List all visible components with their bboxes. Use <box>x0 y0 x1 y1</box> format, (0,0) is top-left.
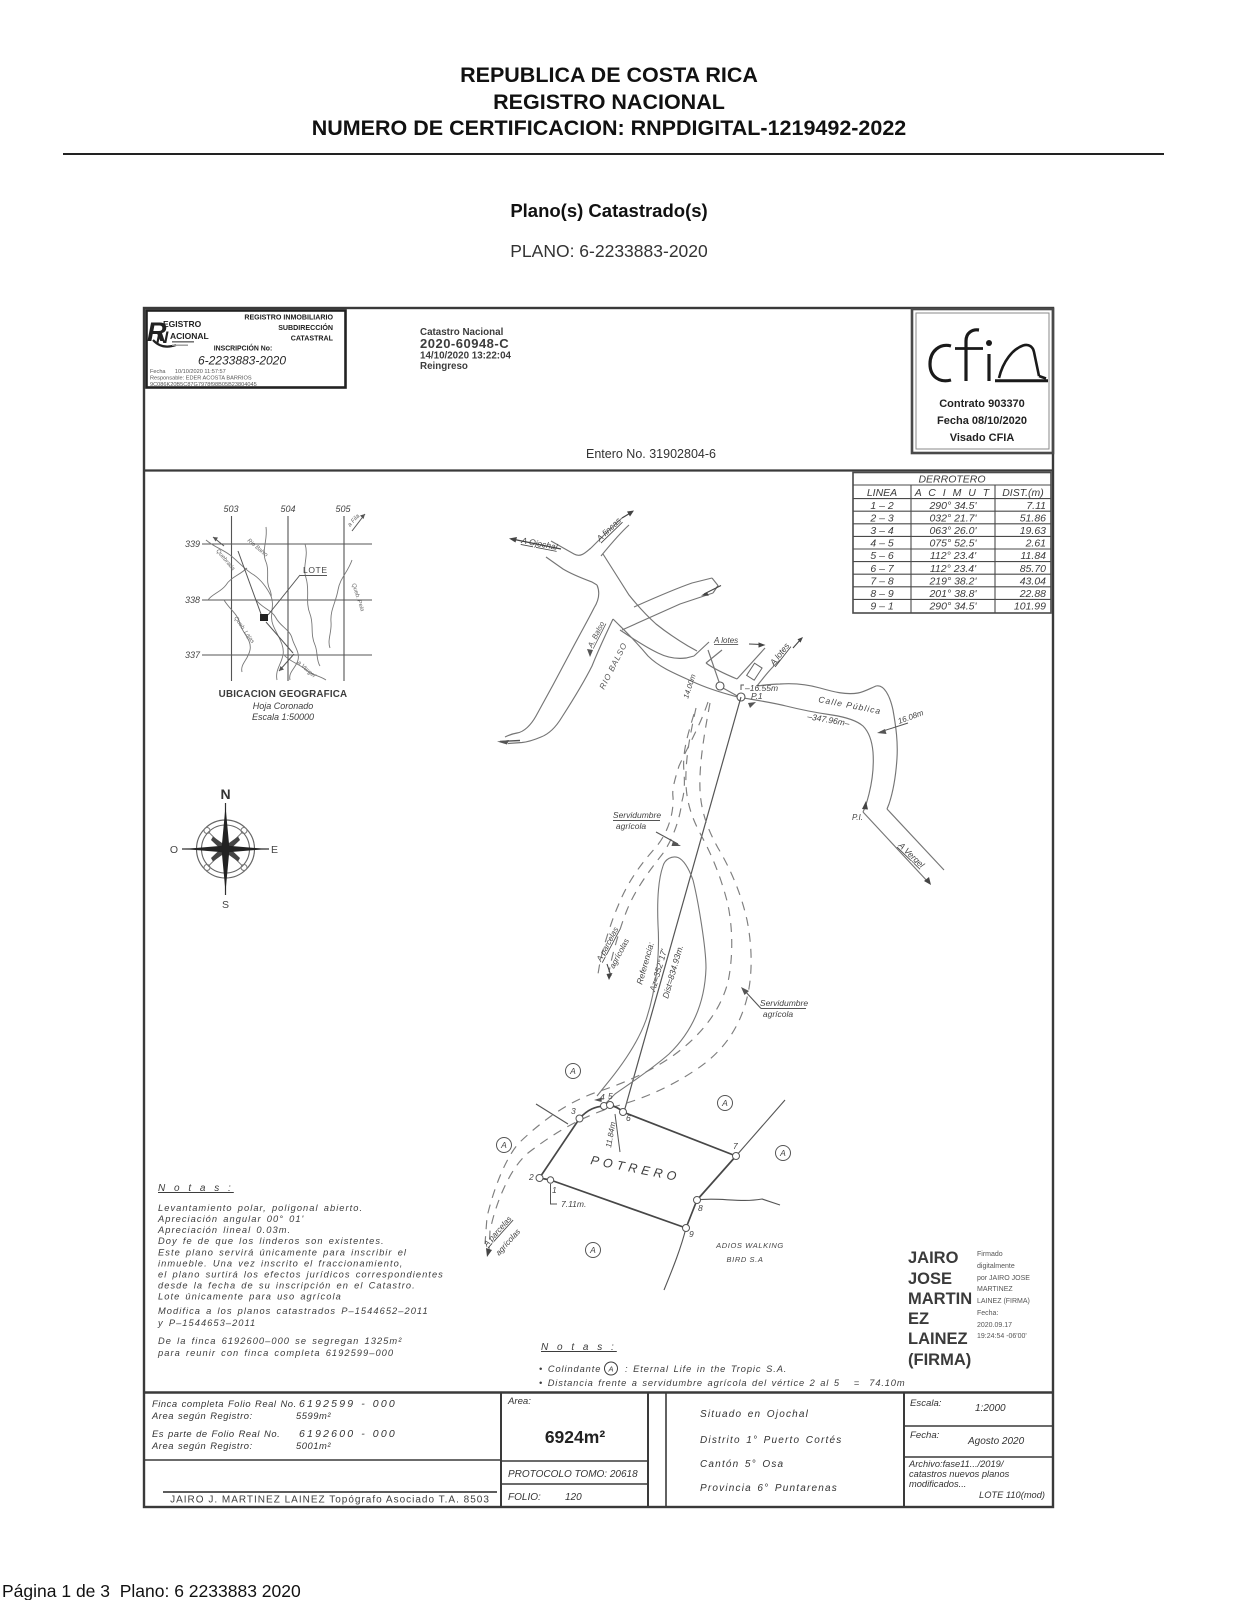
svg-text:4 – 5: 4 – 5 <box>870 538 894 550</box>
svg-text:19.63: 19.63 <box>1020 525 1046 537</box>
svg-text:112° 23.4': 112° 23.4' <box>930 563 977 575</box>
svg-text:5001m²: 5001m² <box>296 1440 331 1451</box>
svg-text:• Colindante: • Colindante <box>539 1364 601 1374</box>
svg-text:UBICACION GEOGRAFICA: UBICACION GEOGRAFICA <box>219 689 348 700</box>
svg-text:7.11m.: 7.11m. <box>561 1199 586 1209</box>
svg-text:P.1: P.1 <box>751 691 763 701</box>
svg-text:JAIRO: JAIRO <box>908 1249 959 1267</box>
svg-text:para reunir con finca completa: para reunir con finca completa 6192599–0… <box>157 1348 394 1358</box>
svg-text:A: A <box>721 1098 728 1108</box>
svg-text:y P–1544653–2011: y P–1544653–2011 <box>157 1318 256 1328</box>
svg-text:3 – 4: 3 – 4 <box>870 525 894 537</box>
svg-text:290° 34.5': 290° 34.5' <box>928 601 977 613</box>
svg-text:Visado CFIA: Visado CFIA <box>950 432 1015 444</box>
svg-text:6192599 - 000: 6192599 - 000 <box>299 1398 397 1410</box>
svg-text:9 – 1: 9 – 1 <box>870 601 893 613</box>
svg-text:REGISTRO INMOBILIARIO: REGISTRO INMOBILIARIO <box>244 314 333 322</box>
svg-text:CATASTRAL: CATASTRAL <box>291 335 334 343</box>
svg-text:A: A <box>500 1140 507 1150</box>
svg-text:1:2000: 1:2000 <box>975 1403 1006 1414</box>
svg-text:LAINEZ: LAINEZ <box>908 1330 968 1348</box>
svg-text:3: 3 <box>571 1106 576 1116</box>
svg-text:Agosto 2020: Agosto 2020 <box>967 1436 1025 1447</box>
svg-text:S: S <box>222 899 229 911</box>
svg-text:EGISTRO: EGISTRO <box>163 319 202 329</box>
svg-text:LOTE: LOTE <box>303 565 328 575</box>
svg-text:De la finca 6192600–000 se seg: De la finca 6192600–000 se segregan 1325… <box>158 1336 402 1346</box>
svg-text:7.11: 7.11 <box>1026 500 1046 512</box>
svg-text:51.86: 51.86 <box>1020 512 1046 524</box>
svg-text:N: N <box>220 786 230 802</box>
svg-text:Archivo:fase11.../2019/: Archivo:fase11.../2019/ <box>908 1459 1005 1469</box>
svg-text:A: A <box>569 1066 576 1076</box>
svg-text:ACIONAL: ACIONAL <box>170 331 209 341</box>
svg-text:N o t a s :: N o t a s : <box>541 1342 617 1353</box>
svg-text:6924m²: 6924m² <box>545 1427 605 1447</box>
svg-text:290° 34.5': 290° 34.5' <box>928 500 977 512</box>
svg-text:A lotes: A lotes <box>713 636 738 645</box>
svg-text:agrícola: agrícola <box>763 1009 794 1019</box>
svg-text:2020.09.17: 2020.09.17 <box>977 1322 1012 1329</box>
svg-text:7 – 8: 7 – 8 <box>870 575 894 587</box>
svg-text:Provincia 6° Puntarenas: Provincia 6° Puntarenas <box>700 1483 838 1494</box>
svg-text:Calle Pública: Calle Pública <box>818 694 883 716</box>
svg-text:219° 38.2': 219° 38.2' <box>928 575 977 587</box>
svg-text:Levantamiento polar, poligonal: Levantamiento polar, poligonal abierto. <box>158 1203 363 1213</box>
svg-text:Hoja Coronado: Hoja Coronado <box>253 701 314 711</box>
svg-text:Este plano servirá únicamente: Este plano servirá únicamente para inscr… <box>158 1248 407 1258</box>
svg-text:A. Balso: A. Balso <box>585 620 606 650</box>
svg-text:Reingreso: Reingreso <box>420 361 468 372</box>
svg-text:LINEA: LINEA <box>867 487 897 499</box>
svg-text:PROTOCOLO TOMO: 20618: PROTOCOLO TOMO: 20618 <box>508 1469 638 1480</box>
svg-text:11.84m: 11.84m <box>604 1121 617 1149</box>
svg-text:Situado en Ojochal: Situado en Ojochal <box>700 1409 809 1420</box>
svg-text:063° 26.0': 063° 26.0' <box>929 525 977 537</box>
svg-text:6 – 7: 6 – 7 <box>870 563 895 575</box>
svg-text:: Eternal Life in the Tropic: : Eternal Life in the Tropic S.A. <box>625 1364 787 1374</box>
svg-text:A Vergel: A Vergel <box>896 840 927 871</box>
svg-text:075° 52.5': 075° 52.5' <box>929 538 977 550</box>
svg-text:Doy fe de que los linderos son: Doy fe de que los linderos son existente… <box>158 1236 385 1246</box>
svg-text:E: E <box>271 844 278 856</box>
svg-text:503: 503 <box>223 504 238 514</box>
svg-text:agrícola: agrícola <box>616 821 647 831</box>
svg-text:85.70: 85.70 <box>1020 563 1046 575</box>
svg-text:INSCRIPCIÓN No:: INSCRIPCIÓN No: <box>214 344 273 353</box>
svg-text:FOLIO:: FOLIO: <box>508 1492 541 1503</box>
svg-text:120: 120 <box>565 1492 582 1503</box>
svg-text:SUBDIRECCIÓN: SUBDIRECCIÓN <box>278 323 333 332</box>
svg-text:A fincas: A fincas <box>594 515 624 544</box>
svg-text:338: 338 <box>185 595 200 605</box>
svg-text:DERROTERO: DERROTERO <box>918 474 985 486</box>
svg-text:Escala:: Escala: <box>910 1398 942 1409</box>
svg-text:BIRD S.A: BIRD S.A <box>727 1255 764 1264</box>
svg-text:5599m²: 5599m² <box>296 1410 331 1421</box>
svg-text:LOTE 110(mod): LOTE 110(mod) <box>979 1490 1045 1500</box>
svg-text:JOSE: JOSE <box>908 1270 952 1288</box>
svg-text:Apreciación angular 00° 01': Apreciación angular 00° 01' <box>157 1214 305 1224</box>
svg-text:112° 23.4': 112° 23.4' <box>930 550 977 562</box>
svg-text:• Distancia frente a servidumb: • Distancia frente a servidumbre agrícol… <box>539 1378 905 1388</box>
svg-text:EZ: EZ <box>908 1310 929 1328</box>
svg-text:por JAIRO JOSE: por JAIRO JOSE <box>977 1275 1030 1282</box>
svg-text:Apreciación lineal 0.03m.: Apreciación lineal 0.03m. <box>157 1225 291 1235</box>
svg-text:9C086K20B5C87G7978f98B05B23804: 9C086K20B5C87G7978f98B05B23804045 <box>150 382 257 388</box>
svg-text:ADIOS WALKING: ADIOS WALKING <box>715 1241 784 1250</box>
svg-text:2 – 3: 2 – 3 <box>869 512 894 524</box>
svg-text:6192600 - 000: 6192600 - 000 <box>299 1428 397 1440</box>
svg-text:A: A <box>779 1148 786 1158</box>
svg-text:6: 6 <box>626 1113 631 1123</box>
svg-text:16.08m: 16.08m <box>897 708 925 726</box>
svg-text:el plano surtirá los efectos j: el plano surtirá los efectos jurídicos c… <box>158 1270 444 1280</box>
svg-text:2020-60948-C: 2020-60948-C <box>420 336 509 351</box>
svg-text:2.61: 2.61 <box>1025 538 1046 550</box>
svg-text:POTRERO: POTRERO <box>589 1153 681 1184</box>
svg-text:inmueble. Una vez inscrito el: inmueble. Una vez inscrito el fraccionam… <box>158 1259 403 1269</box>
svg-text:032° 21.7': 032° 21.7' <box>929 512 977 524</box>
svg-text:Es parte de Folio Real No.: Es parte de Folio Real No. <box>152 1428 280 1439</box>
svg-text:LAINEZ (FIRMA): LAINEZ (FIRMA) <box>977 1298 1030 1305</box>
svg-text:catastros nuevos planos: catastros nuevos planos <box>909 1469 1010 1479</box>
svg-text:DIST.(m): DIST.(m) <box>1002 487 1044 499</box>
svg-text:A lotes: A lotes <box>767 640 792 668</box>
svg-text:MARTIN: MARTIN <box>908 1290 972 1308</box>
svg-text:Queb. Lajas: Queb. Lajas <box>232 616 255 645</box>
svg-text:JAIRO J. MARTINEZ LAINEZ T: JAIRO J. MARTINEZ LAINEZ Topógrafo Asoci… <box>170 1495 490 1506</box>
svg-text:Contrato 903370: Contrato 903370 <box>939 398 1025 410</box>
svg-text:201° 38.8': 201° 38.8' <box>928 588 977 600</box>
svg-text:337: 337 <box>185 650 201 660</box>
svg-text:MARTINEZ: MARTINEZ <box>977 1286 1013 1293</box>
svg-text:Area:: Area: <box>507 1396 531 1407</box>
svg-text:5: 5 <box>608 1091 613 1101</box>
svg-text:A Ojochal: A Ojochal <box>520 535 560 552</box>
svg-text:Firmado: Firmado <box>977 1251 1003 1258</box>
svg-text:O: O <box>170 844 178 856</box>
svg-text:2: 2 <box>528 1172 534 1182</box>
svg-text:Finca completa Folio Real No.: Finca completa Folio Real No. <box>152 1398 297 1409</box>
svg-text:1: 1 <box>552 1185 557 1195</box>
svg-text:339: 339 <box>185 539 200 549</box>
svg-text:A: A <box>589 1245 596 1255</box>
svg-text:504: 504 <box>280 504 295 514</box>
svg-text:9: 9 <box>689 1229 694 1239</box>
svg-text:P.I.: P.I. <box>852 813 863 822</box>
svg-text:14/10/2020 13:22:04: 14/10/2020 13:22:04 <box>420 351 512 362</box>
svg-text:8: 8 <box>698 1203 703 1213</box>
svg-text:Entero No. 31902804-6: Entero No. 31902804-6 <box>586 447 716 461</box>
svg-text:11.84: 11.84 <box>1021 550 1047 562</box>
svg-text:Servidumbre: Servidumbre <box>613 810 661 820</box>
svg-text:A C I M U T: A C I M U T <box>914 487 991 499</box>
svg-text:5 – 6: 5 – 6 <box>870 550 894 562</box>
svg-text:Distrito 1° Puerto Cortés: Distrito 1° Puerto Cortés <box>700 1435 842 1446</box>
svg-text:Queb. Pela: Queb. Pela <box>350 583 365 613</box>
svg-text:Escala 1:50000: Escala 1:50000 <box>252 712 314 722</box>
svg-text:–347.96m–: –347.96m– <box>806 711 851 728</box>
svg-text:19:24:54 -06'00': 19:24:54 -06'00' <box>977 1333 1027 1340</box>
svg-text:22.88: 22.88 <box>1019 588 1046 600</box>
svg-text:Fecha:: Fecha: <box>977 1310 998 1317</box>
svg-text:desde la fecha de su inscripci: desde la fecha de su inscripción en el C… <box>158 1281 416 1291</box>
svg-text:7: 7 <box>733 1141 738 1151</box>
svg-text:digitalmente: digitalmente <box>977 1263 1015 1270</box>
svg-text:101.99: 101.99 <box>1014 601 1046 613</box>
svg-text:(FIRMA): (FIRMA) <box>908 1351 971 1369</box>
svg-text:Responsable: EDER ACOSTA BARRI: Responsable: EDER ACOSTA BARRIOS <box>150 376 252 382</box>
svg-text:Fecha 08/10/2020: Fecha 08/10/2020 <box>937 415 1027 427</box>
svg-text:Fecha 10/10/2020 11:57:57: Fecha 10/10/2020 11:57:57 <box>150 369 226 375</box>
svg-text:Cantón 5° Osa: Cantón 5° Osa <box>700 1459 784 1470</box>
svg-text:Area según Registro:: Area según Registro: <box>151 1440 253 1451</box>
svg-text:Servidumbre: Servidumbre <box>760 998 808 1008</box>
svg-text:1 – 2: 1 – 2 <box>870 500 894 512</box>
svg-text:Modifica a los planos catastra: Modifica a los planos catastrados P–1544… <box>158 1306 429 1316</box>
svg-text:Lote únicamente para uso agríc: Lote únicamente para uso agrícola <box>158 1292 342 1302</box>
svg-text:Fecha:: Fecha: <box>910 1430 940 1441</box>
svg-text:8 – 9: 8 – 9 <box>870 588 894 600</box>
svg-text:modificados...: modificados... <box>909 1479 966 1489</box>
svg-text:A: A <box>607 1365 613 1374</box>
svg-text:505: 505 <box>335 504 351 514</box>
svg-text:Area según Registro:: Area según Registro: <box>151 1410 253 1421</box>
svg-text:6-2233883-2020: 6-2233883-2020 <box>198 354 286 368</box>
svg-text:N o t a s :: N o t a s : <box>158 1183 234 1194</box>
svg-text:RIO BALSO: RIO BALSO <box>598 641 629 691</box>
svg-text:43.04: 43.04 <box>1020 575 1046 587</box>
svg-text:a Vergel: a Vergel <box>296 660 317 680</box>
